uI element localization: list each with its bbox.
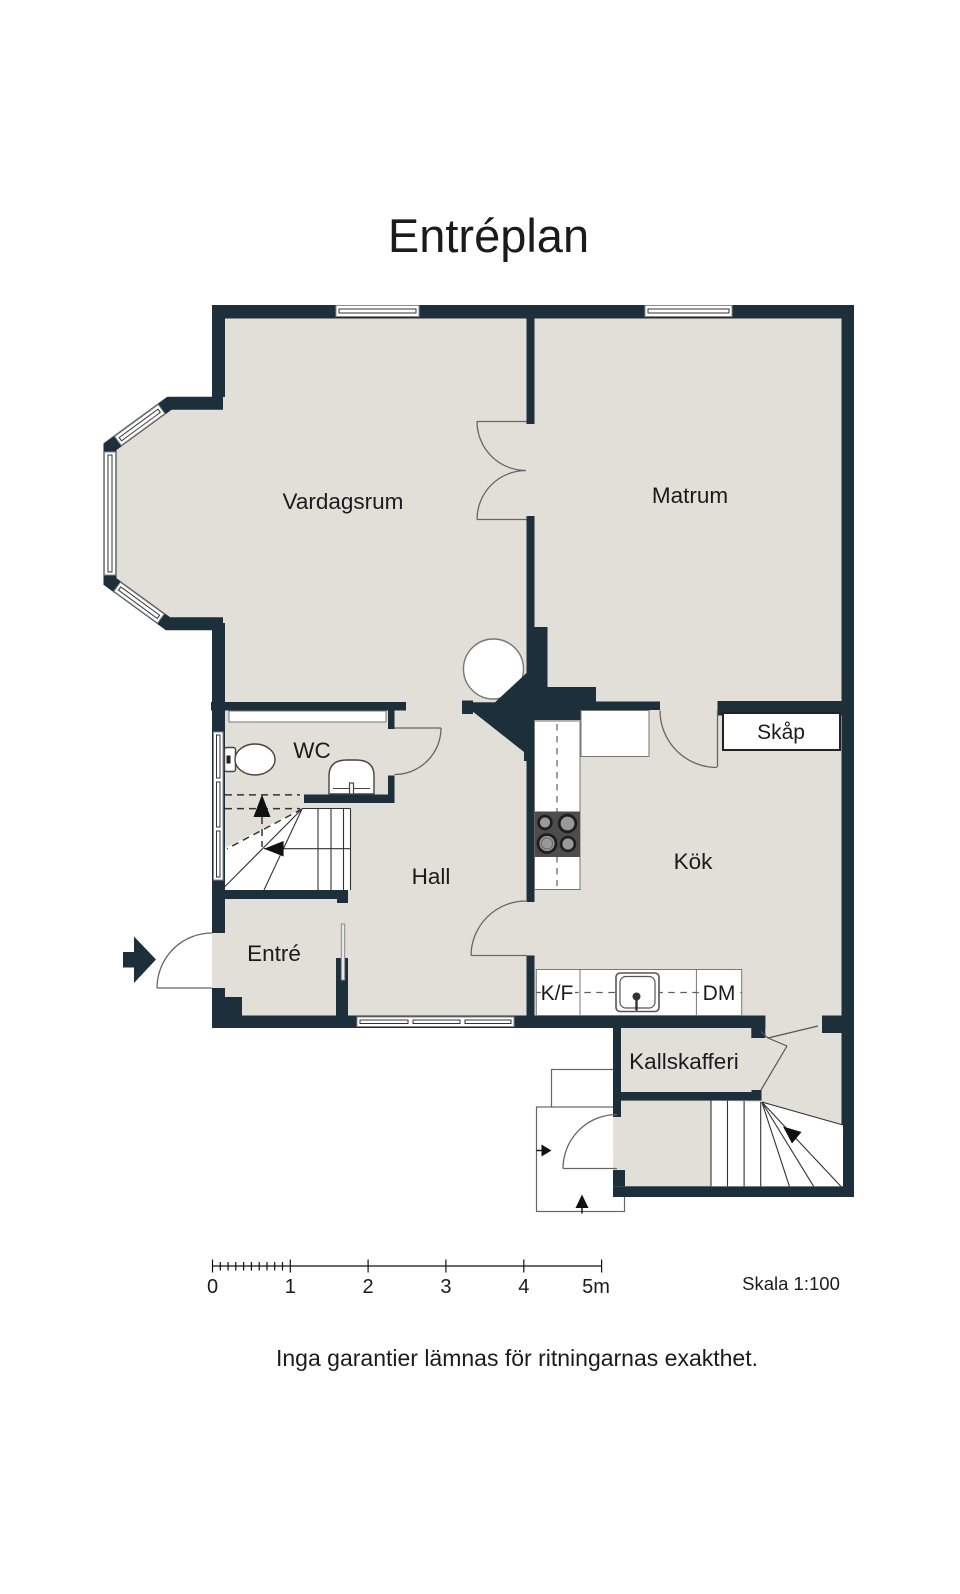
svg-text:Skala 1:100: Skala 1:100 — [742, 1273, 840, 1294]
svg-text:Entré: Entré — [247, 941, 301, 966]
svg-text:Entréplan: Entréplan — [388, 209, 589, 262]
svg-text:5m: 5m — [582, 1276, 610, 1298]
svg-text:K/F: K/F — [541, 982, 574, 1005]
svg-text:Hall: Hall — [412, 864, 451, 889]
svg-text:0: 0 — [207, 1276, 218, 1298]
svg-text:2: 2 — [363, 1276, 374, 1298]
svg-text:Kök: Kök — [674, 849, 714, 874]
svg-text:Skåp: Skåp — [757, 721, 805, 744]
svg-text:4: 4 — [518, 1276, 529, 1298]
svg-text:Inga garantier lämnas för ritn: Inga garantier lämnas för ritningarnas e… — [276, 1345, 758, 1371]
svg-text:Vardagsrum: Vardagsrum — [283, 489, 404, 514]
svg-text:3: 3 — [440, 1276, 451, 1298]
svg-text:WC: WC — [293, 738, 331, 763]
svg-text:1: 1 — [285, 1276, 296, 1298]
svg-text:Kallskafferi: Kallskafferi — [629, 1049, 739, 1074]
svg-text:Matrum: Matrum — [652, 483, 728, 508]
svg-text:DM: DM — [703, 982, 736, 1005]
